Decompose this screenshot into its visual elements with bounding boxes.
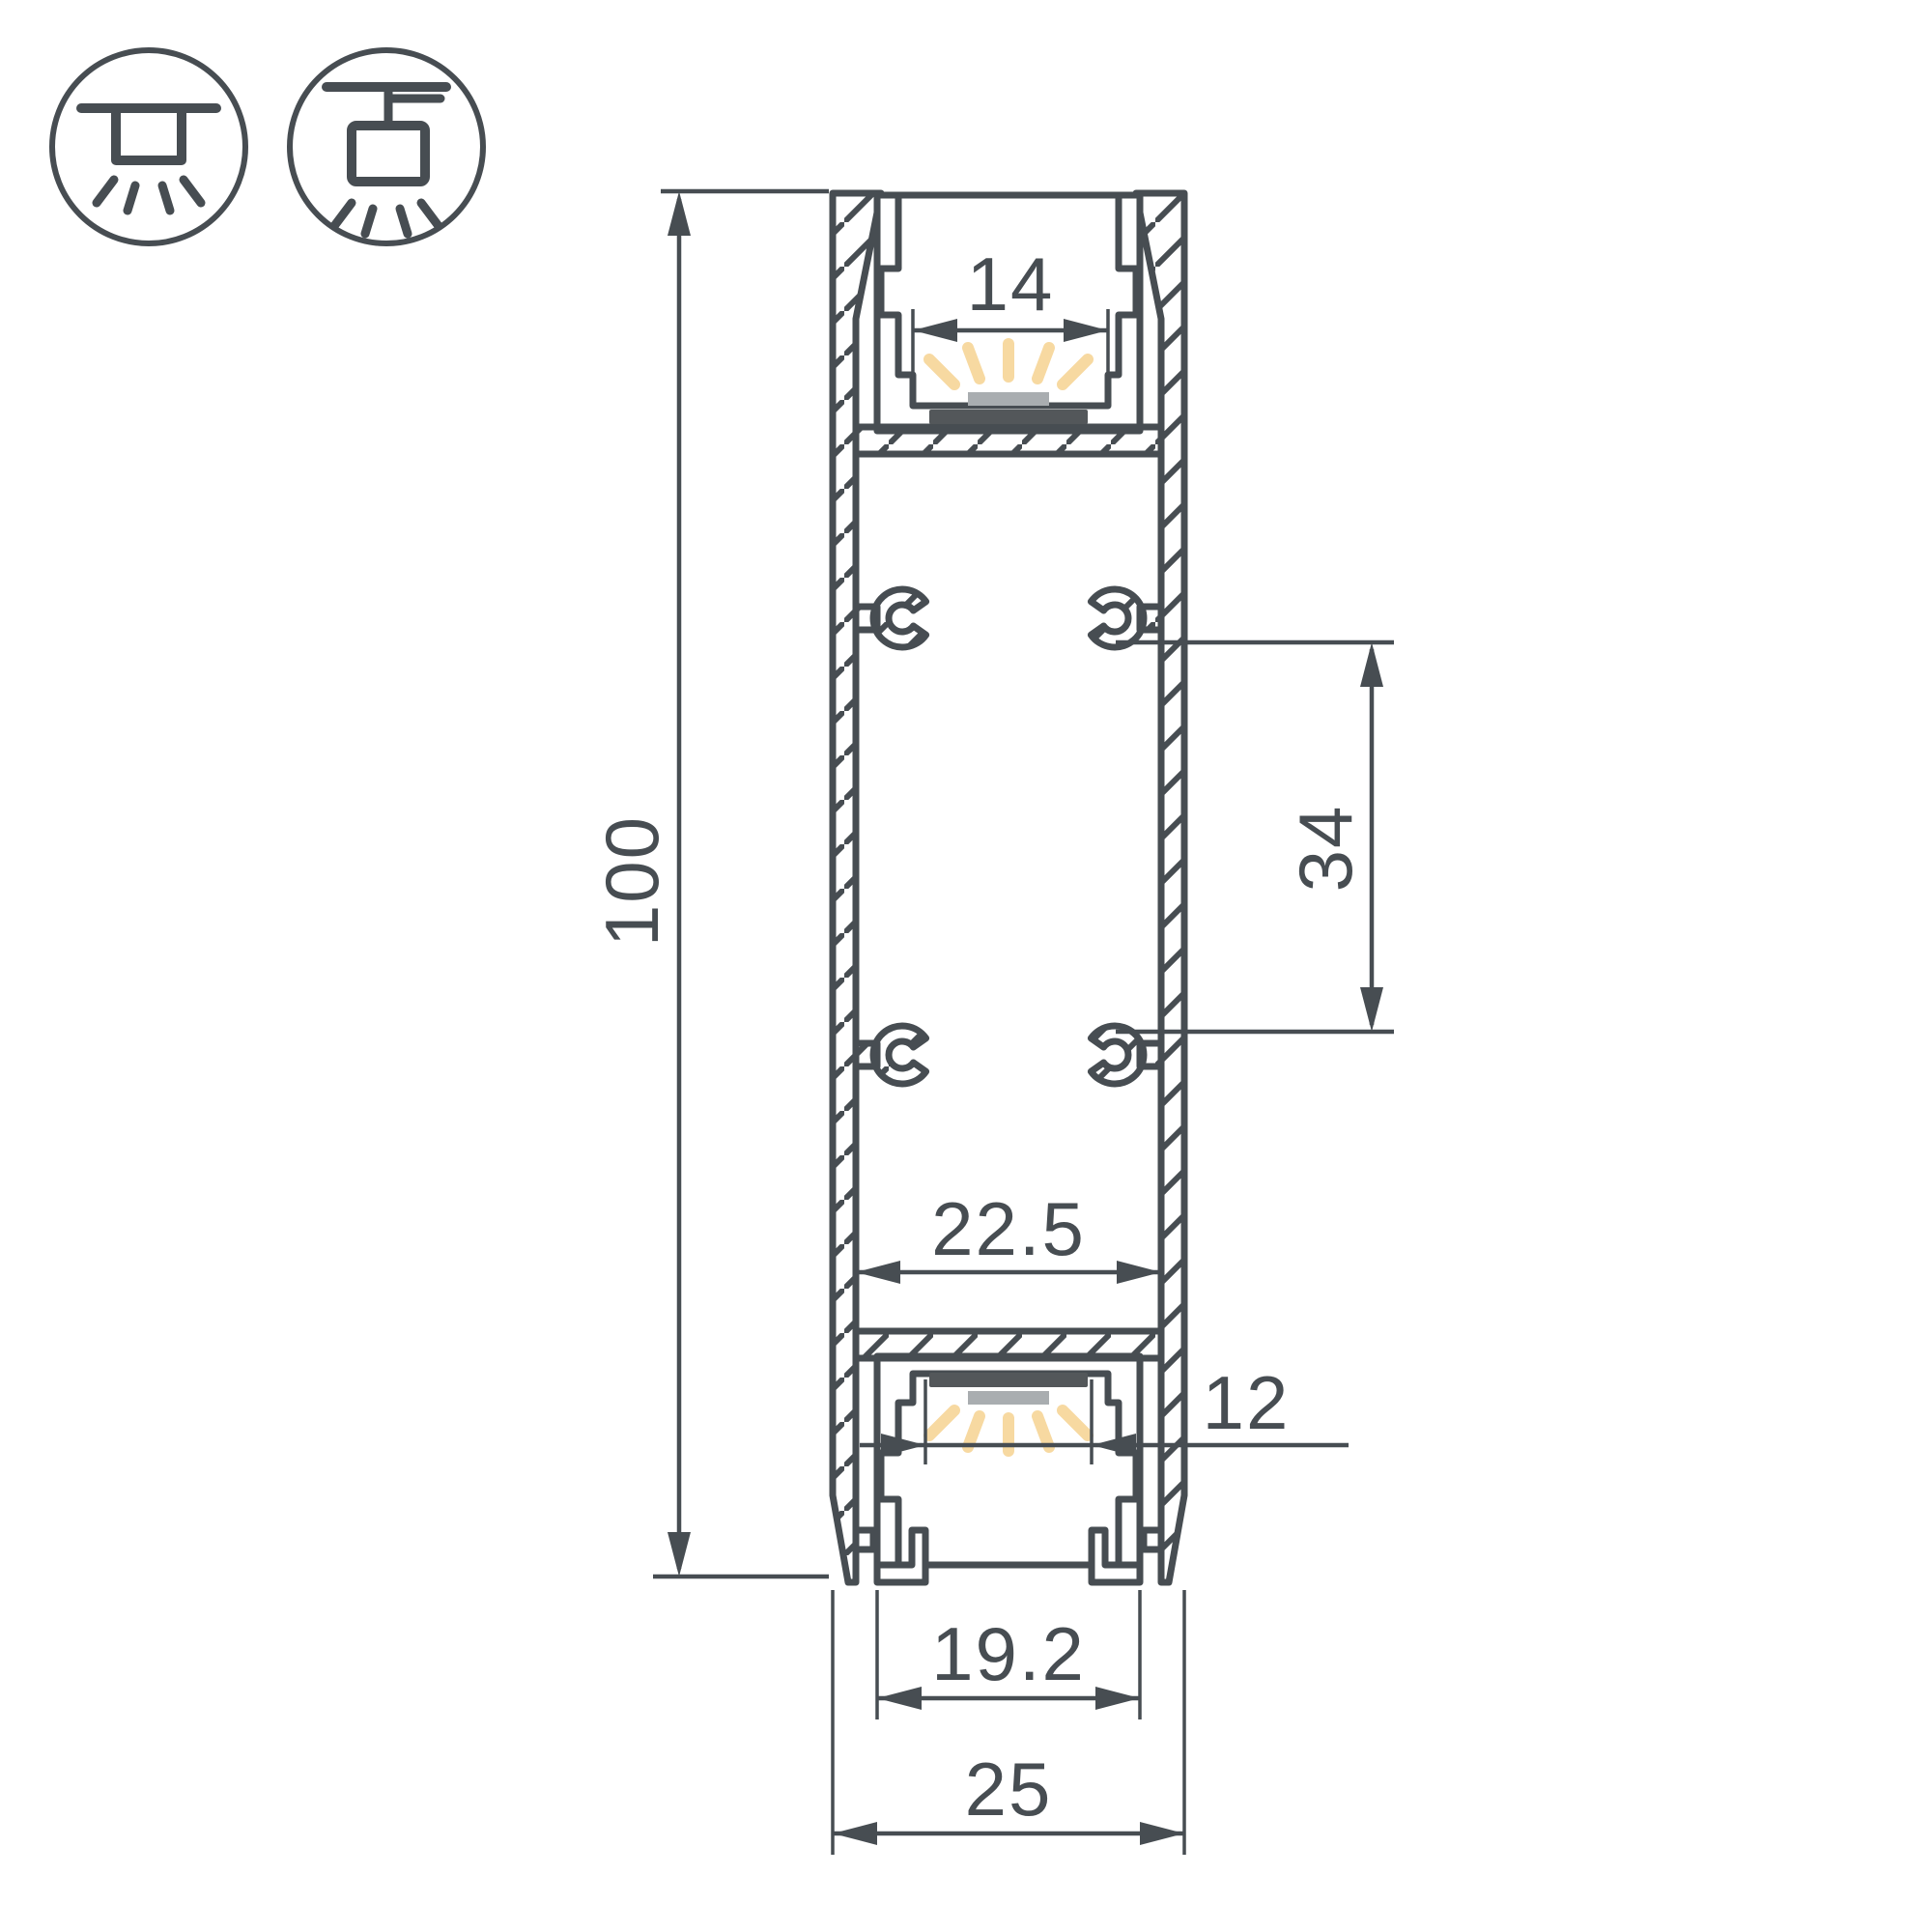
dim-overall-height: 100 bbox=[589, 191, 829, 1577]
dim-label-22-5: 22.5 bbox=[931, 1186, 1086, 1271]
dim-label-25: 25 bbox=[965, 1747, 1053, 1832]
profile-drawing: 100 14 34 22.5 bbox=[0, 0, 1932, 1932]
screw-bosses bbox=[856, 589, 1161, 1084]
fixture-box bbox=[352, 126, 425, 182]
recessed-ceiling-mount-icon bbox=[52, 50, 245, 243]
surface-pendant-mount-icon bbox=[290, 50, 483, 243]
left-accessory-slot bbox=[856, 1530, 873, 1549]
dim-bottom-channel-width: 19.2 bbox=[877, 1590, 1140, 1719]
dim-label-14: 14 bbox=[967, 241, 1055, 327]
dim-label-34: 34 bbox=[1283, 805, 1368, 893]
profile-section bbox=[833, 193, 1184, 1582]
led-strip bbox=[929, 1373, 1088, 1387]
led-strip bbox=[929, 410, 1088, 424]
icon-light-rays bbox=[97, 180, 201, 211]
drawing-canvas: 100 14 34 22.5 bbox=[0, 0, 1932, 1932]
bottom-led-assembly bbox=[929, 1373, 1088, 1451]
light-rays-up bbox=[929, 344, 1088, 384]
icon-light-rays bbox=[334, 203, 439, 234]
dim-label-12: 12 bbox=[1203, 1360, 1291, 1445]
icon-circle bbox=[52, 50, 245, 243]
icon-circle bbox=[290, 50, 483, 243]
right-accessory-slot bbox=[1144, 1530, 1161, 1549]
bottom-web bbox=[856, 1331, 1161, 1358]
recessed-box bbox=[116, 108, 182, 160]
mount-icons bbox=[52, 50, 483, 243]
dim-label-19-2: 19.2 bbox=[931, 1611, 1086, 1696]
screw-boss-top-right bbox=[1091, 589, 1144, 647]
screw-boss-bottom-left bbox=[873, 1026, 926, 1084]
led-diffuser bbox=[968, 1391, 1049, 1405]
top-web bbox=[856, 427, 1161, 454]
screw-boss-bottom-right bbox=[1091, 1026, 1144, 1084]
dim-label-100: 100 bbox=[589, 815, 674, 947]
dim-inner-width: 22.5 bbox=[856, 1186, 1161, 1284]
screw-boss-top-left bbox=[873, 589, 926, 647]
dim-mount-spacing: 34 bbox=[1116, 642, 1394, 1032]
top-led-assembly bbox=[929, 344, 1088, 424]
led-diffuser bbox=[968, 392, 1049, 406]
